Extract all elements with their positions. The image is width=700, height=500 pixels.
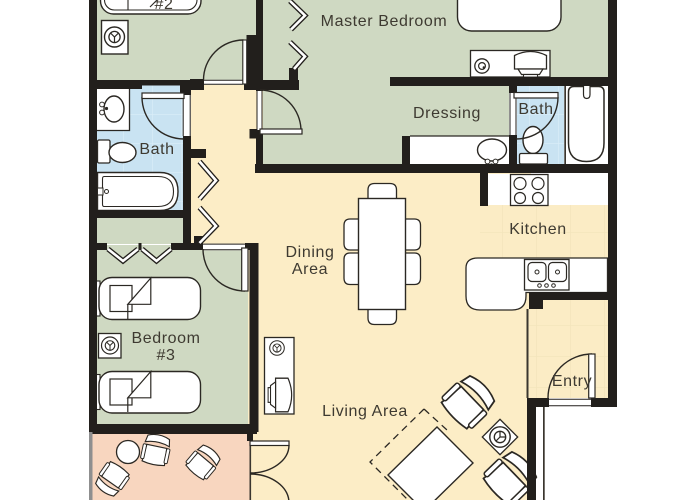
svg-text:Dressing: Dressing	[413, 105, 481, 122]
svg-text:Dining: Dining	[286, 244, 335, 261]
svg-text:Living Area: Living Area	[322, 403, 408, 420]
svg-text:Entry: Entry	[552, 373, 592, 390]
svg-text:Bath: Bath	[139, 141, 174, 158]
svg-text:#3: #3	[157, 347, 176, 364]
svg-text:Bath: Bath	[518, 101, 553, 118]
svg-text:Bedroom: Bedroom	[131, 330, 200, 347]
svg-text:Kitchen: Kitchen	[509, 221, 567, 238]
svg-text:#2: #2	[155, 0, 174, 13]
svg-text:Master Bedroom: Master Bedroom	[321, 13, 448, 30]
svg-text:Area: Area	[292, 261, 328, 278]
